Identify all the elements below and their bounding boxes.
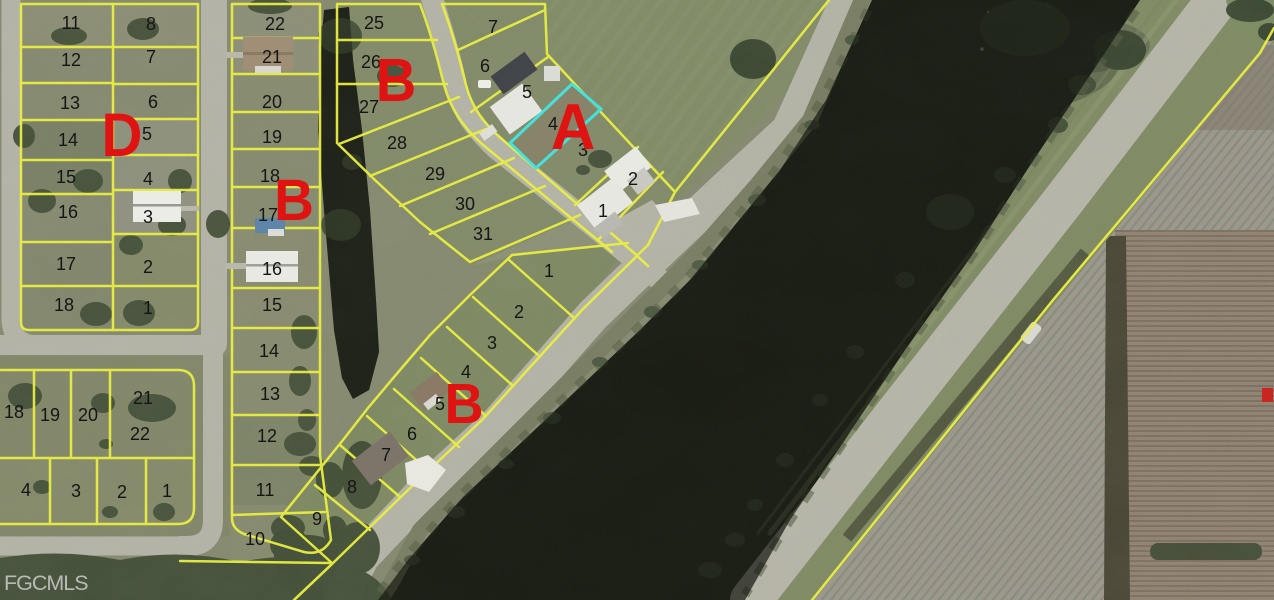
svg-text:25: 25 bbox=[364, 13, 384, 33]
svg-text:21: 21 bbox=[262, 47, 282, 67]
svg-text:12: 12 bbox=[61, 50, 81, 70]
svg-text:16: 16 bbox=[262, 259, 282, 279]
svg-text:3: 3 bbox=[71, 481, 81, 501]
svg-text:13: 13 bbox=[60, 93, 80, 113]
svg-text:D: D bbox=[102, 102, 143, 169]
svg-text:19: 19 bbox=[262, 127, 282, 147]
svg-text:7: 7 bbox=[381, 445, 391, 465]
svg-text:14: 14 bbox=[58, 130, 78, 150]
svg-text:18: 18 bbox=[54, 295, 74, 315]
svg-text:22: 22 bbox=[130, 424, 150, 444]
svg-text:8: 8 bbox=[347, 477, 357, 497]
svg-text:A: A bbox=[551, 92, 596, 164]
svg-text:15: 15 bbox=[56, 167, 76, 187]
svg-text:11: 11 bbox=[62, 13, 81, 33]
svg-text:1: 1 bbox=[544, 261, 554, 281]
svg-text:15: 15 bbox=[262, 295, 282, 315]
svg-text:2: 2 bbox=[628, 169, 638, 189]
svg-text:11: 11 bbox=[256, 480, 275, 500]
svg-text:28: 28 bbox=[387, 133, 407, 153]
svg-text:6: 6 bbox=[148, 92, 158, 112]
svg-text:B: B bbox=[444, 372, 483, 436]
svg-text:20: 20 bbox=[78, 405, 98, 425]
svg-text:7: 7 bbox=[488, 17, 498, 37]
svg-text:21: 21 bbox=[133, 388, 153, 408]
svg-text:9: 9 bbox=[312, 509, 322, 529]
svg-text:31: 31 bbox=[473, 224, 493, 244]
svg-text:FGCMLS: FGCMLS bbox=[4, 571, 88, 595]
svg-text:6: 6 bbox=[480, 56, 490, 76]
svg-text:10: 10 bbox=[245, 529, 265, 549]
svg-text:6: 6 bbox=[407, 424, 417, 444]
svg-text:B: B bbox=[376, 47, 417, 115]
svg-text:20: 20 bbox=[262, 92, 282, 112]
svg-text:22: 22 bbox=[265, 14, 285, 34]
svg-text:17: 17 bbox=[56, 254, 76, 274]
svg-text:29: 29 bbox=[425, 164, 445, 184]
svg-text:2: 2 bbox=[143, 257, 153, 277]
svg-text:2: 2 bbox=[117, 482, 127, 502]
svg-text:3: 3 bbox=[143, 207, 153, 227]
svg-text:12: 12 bbox=[257, 426, 277, 446]
svg-text:3: 3 bbox=[487, 333, 497, 353]
svg-text:1: 1 bbox=[162, 481, 172, 501]
svg-text:18: 18 bbox=[4, 402, 24, 422]
svg-text:14: 14 bbox=[259, 341, 279, 361]
svg-text:4: 4 bbox=[21, 480, 31, 500]
svg-text:5: 5 bbox=[522, 82, 532, 102]
svg-text:1: 1 bbox=[598, 201, 608, 221]
svg-text:4: 4 bbox=[143, 169, 153, 189]
svg-text:30: 30 bbox=[455, 194, 475, 214]
svg-text:B: B bbox=[274, 168, 314, 233]
svg-text:16: 16 bbox=[58, 202, 78, 222]
svg-text:13: 13 bbox=[260, 384, 280, 404]
svg-text:2: 2 bbox=[514, 302, 524, 322]
svg-text:19: 19 bbox=[40, 405, 60, 425]
svg-text:1: 1 bbox=[143, 298, 153, 318]
svg-text:8: 8 bbox=[146, 14, 156, 34]
svg-text:5: 5 bbox=[142, 124, 152, 144]
svg-text:7: 7 bbox=[146, 47, 156, 67]
